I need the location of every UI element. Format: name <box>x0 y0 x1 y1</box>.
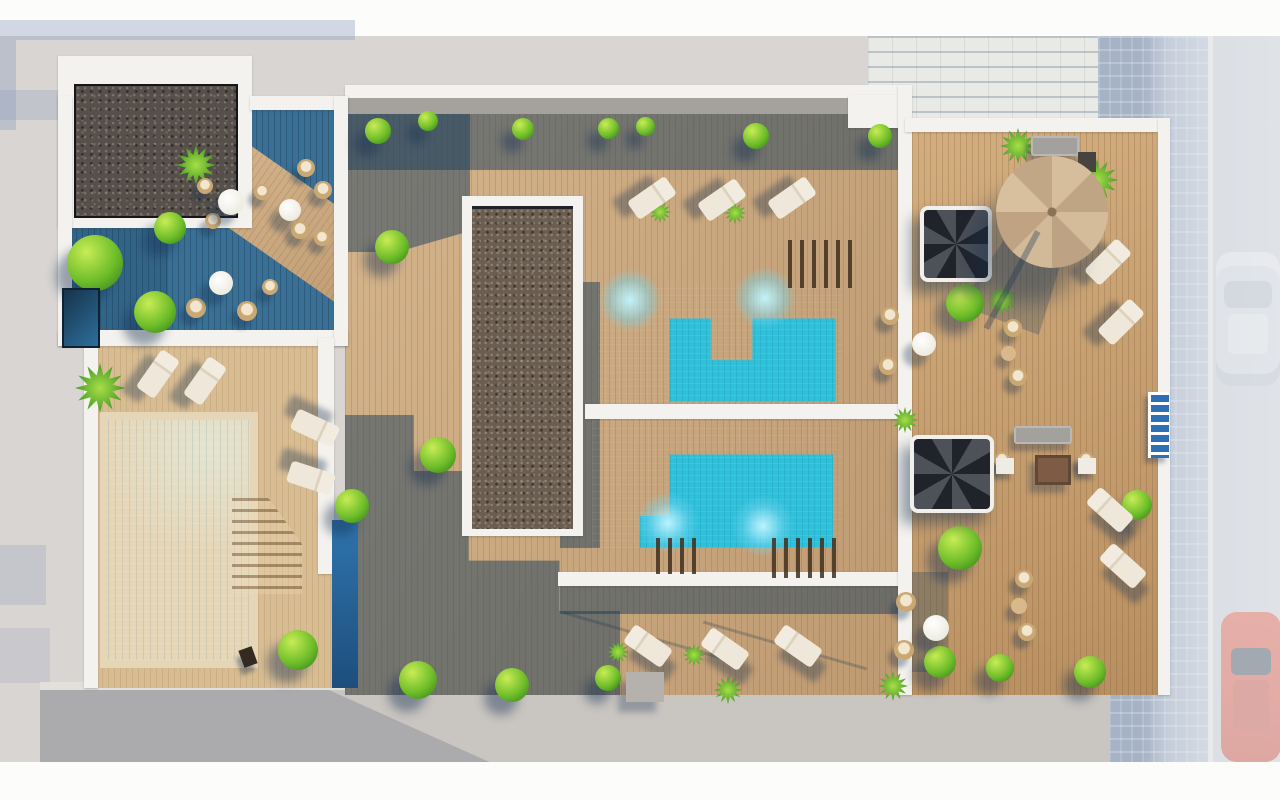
side-table <box>996 458 1014 474</box>
spiral-stair <box>910 435 994 513</box>
chair <box>896 592 916 612</box>
tree <box>335 489 369 523</box>
lounger <box>627 176 677 220</box>
tree <box>67 235 123 291</box>
table-white <box>279 199 301 221</box>
tree <box>595 665 621 691</box>
block <box>626 672 664 702</box>
chair <box>881 307 899 325</box>
chair <box>262 279 278 295</box>
chair <box>254 184 270 200</box>
lounger <box>1097 298 1145 346</box>
chair <box>314 181 332 199</box>
lounger <box>1099 542 1148 589</box>
lounger <box>700 627 750 671</box>
side-table <box>1078 458 1096 474</box>
chair <box>297 159 315 177</box>
tree <box>399 661 437 699</box>
tree <box>868 124 892 148</box>
palm <box>683 644 705 666</box>
chair <box>314 230 330 246</box>
chair <box>894 640 914 660</box>
tree <box>420 437 456 473</box>
tree <box>154 212 186 244</box>
tree <box>924 646 956 678</box>
palm <box>714 676 742 704</box>
tree <box>743 123 769 149</box>
slats <box>788 240 852 288</box>
table-white <box>218 189 244 215</box>
lounger <box>136 349 180 399</box>
palm <box>878 671 908 701</box>
lounger <box>290 408 341 447</box>
planter-box <box>62 288 100 348</box>
tree <box>986 654 1014 682</box>
tree <box>1074 656 1106 688</box>
lounger <box>773 624 823 668</box>
chair <box>1004 319 1022 337</box>
chair <box>1018 623 1036 641</box>
chair <box>879 357 897 375</box>
tree <box>418 111 438 131</box>
chair <box>197 178 213 194</box>
slats <box>656 538 700 574</box>
tree <box>375 230 409 264</box>
palm <box>892 407 918 433</box>
sofa <box>1014 426 1072 444</box>
chair <box>291 221 309 239</box>
dark-chair <box>238 646 257 668</box>
tree <box>946 284 984 322</box>
glow <box>599 269 661 331</box>
ladder <box>1148 392 1169 458</box>
chair <box>1009 368 1027 386</box>
table-white <box>912 332 936 356</box>
tree <box>938 526 982 570</box>
tree <box>278 630 318 670</box>
table-tan <box>1011 598 1027 614</box>
tree <box>134 291 176 333</box>
table-white <box>923 615 949 641</box>
table-white <box>209 271 233 295</box>
slats <box>772 538 844 578</box>
tree <box>636 117 655 136</box>
spiral-stair <box>920 206 992 282</box>
lounger <box>767 176 817 220</box>
sprite-layer <box>0 0 1280 800</box>
umbrella <box>996 156 1108 268</box>
chair <box>1015 570 1033 588</box>
tree <box>495 668 529 702</box>
rooftop-render <box>0 0 1280 800</box>
tree <box>365 118 391 144</box>
tree <box>512 118 534 140</box>
steps <box>232 498 302 594</box>
table-square <box>1035 455 1071 485</box>
chair <box>237 301 257 321</box>
lounger <box>183 356 227 406</box>
chair <box>186 298 206 318</box>
chair <box>205 213 221 229</box>
palm <box>75 363 125 413</box>
tree <box>598 118 619 139</box>
sofa <box>1031 136 1079 156</box>
lounger <box>286 460 337 495</box>
lounger <box>623 624 673 668</box>
glow <box>734 267 796 329</box>
table-tan <box>1001 346 1016 361</box>
